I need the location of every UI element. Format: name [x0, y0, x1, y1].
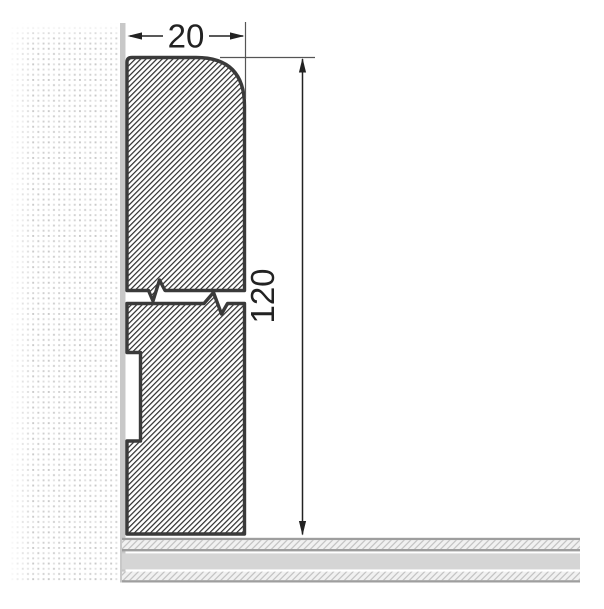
- wall: [8, 23, 126, 583]
- floor-mid-line-upper: [122, 549, 580, 551]
- width-dimension-label: 20: [168, 18, 205, 55]
- floor-hatched-layer-bottom: [122, 572, 580, 581]
- floor: [122, 538, 580, 583]
- drawing-page: 20 120: [0, 0, 604, 604]
- arrow-down-icon: [299, 521, 306, 536]
- technical-drawing-canvas: 20 120: [0, 0, 604, 604]
- floor-bottom-line: [122, 580, 580, 582]
- wall-surface-strip: [120, 23, 126, 583]
- arrow-left-icon: [128, 32, 143, 39]
- skirting-profile-lower: [127, 293, 245, 535]
- floor-slab: [122, 553, 580, 569]
- floor-hatched-layer-top: [122, 540, 580, 549]
- floor-top-line: [122, 538, 580, 540]
- arrow-right-icon: [230, 32, 245, 39]
- arrow-up-icon: [299, 58, 306, 73]
- skirting-profile-upper: [127, 58, 245, 302]
- wall-top-fade: [8, 23, 120, 39]
- wall-left-fade: [8, 23, 34, 583]
- height-dimension-label: 120: [244, 268, 281, 323]
